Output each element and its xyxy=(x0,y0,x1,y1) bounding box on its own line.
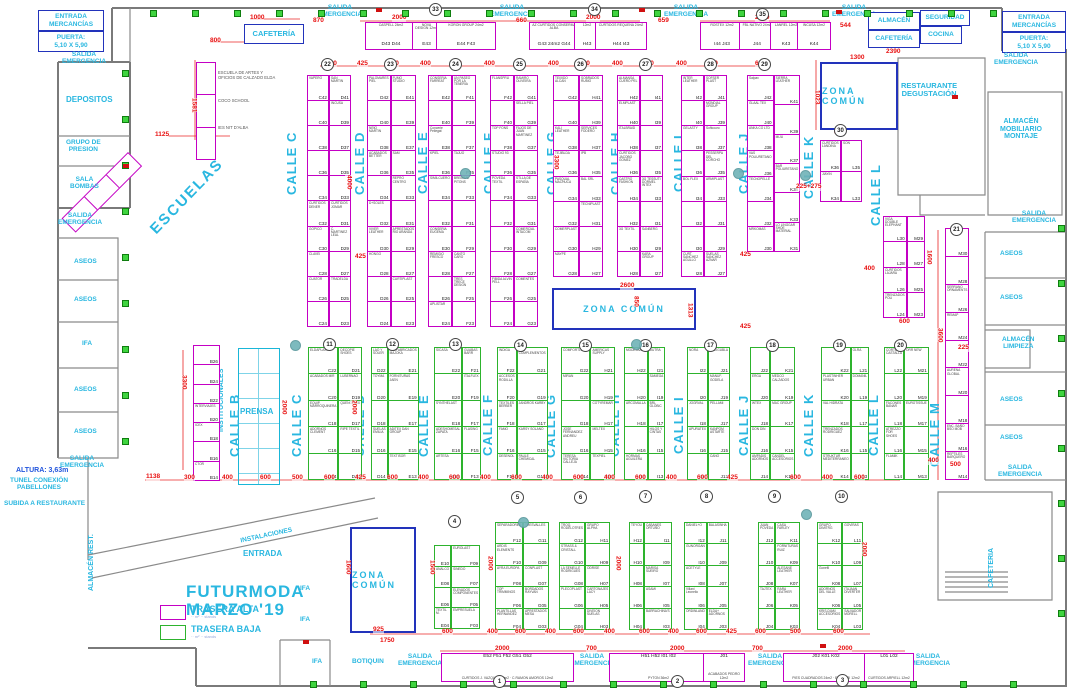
booth-G25: COMENTESG25 xyxy=(515,277,537,302)
booth-company: PELLAMI xyxy=(710,402,728,405)
booth-I07: MARISA SUEIROI07 xyxy=(645,566,671,587)
booth-C20: ACABADOS MIRC20 xyxy=(309,374,337,400)
booth-code: G27 xyxy=(527,271,536,276)
booth-code: L05 xyxy=(853,603,861,608)
booth-code: E38 xyxy=(442,145,450,150)
label-cafeteria: CAFETERIA xyxy=(988,535,995,600)
booth-company: VIVER LEATHER xyxy=(369,228,389,234)
boothrow-I44: ROSTEX 12m2I44 J43 xyxy=(700,22,744,50)
booth-code: I09 xyxy=(663,560,669,565)
booth-D19: LUBERNAOD19 xyxy=(339,374,361,400)
booth-K18: VAL HIDRATAK18 xyxy=(822,401,850,427)
booth-subcolumn: EUROLASTF09SINEDOF07ELEVADOS COMPONENTES… xyxy=(451,545,480,629)
booth-subcolumn: NORAI22I20JOGRVALI18APURATEXI16I14 xyxy=(687,347,708,480)
label-almac-n: ALMACÉN MOBILIARIO MONTAJE xyxy=(1000,118,1042,141)
booth-D37: D37 xyxy=(330,126,350,151)
booth-code: G19 xyxy=(537,395,546,400)
booth-J37: SoftcouroJ37 xyxy=(705,126,726,151)
booth-J07: J07 xyxy=(708,566,728,587)
booth-L17: L17 xyxy=(852,401,869,427)
booth-code: D21 xyxy=(352,368,360,373)
booth-F40: F40 xyxy=(491,101,513,126)
booth-D29: C. MARTINEZ LEALD29 xyxy=(330,227,350,252)
booth-F23: F23 xyxy=(453,302,475,326)
booth-code: C40 xyxy=(319,120,327,125)
booth-code: D15 xyxy=(352,448,360,453)
booth-M18: M18 xyxy=(946,396,968,424)
booth-code: F24 xyxy=(504,321,512,326)
booth-company: PAULE CHEMICAL xyxy=(519,455,546,461)
booth-L05: ITAJAAN DIVERTERL05 xyxy=(843,587,862,608)
booth-company: MANUF. GODELA xyxy=(710,375,728,381)
pillar xyxy=(290,340,301,351)
booth-code: E43 xyxy=(415,43,438,48)
booth-J34: TECNOPELLEJ34 xyxy=(748,177,773,202)
dimension-400: 400 xyxy=(666,475,677,482)
booth-D34: D34 xyxy=(368,176,390,201)
booth-code: J11 xyxy=(720,538,727,543)
booth-code: C32 xyxy=(319,221,327,226)
door-marker xyxy=(990,10,997,17)
label-aseos: ASEOS xyxy=(1000,434,1023,441)
booth-code: J10 xyxy=(766,560,773,565)
booth-D20: TOYMAD20 xyxy=(372,374,387,400)
booth-D22: LAO Y SOLERD22 xyxy=(372,348,387,374)
booth-code: H40 xyxy=(630,120,638,125)
booth-G28: MAYPEG28 xyxy=(554,252,578,276)
booth-E23: E23 xyxy=(392,302,416,326)
booth-code: F16 xyxy=(507,448,515,453)
door-marker xyxy=(122,438,129,445)
booth-company: CASPELL 24m2 xyxy=(368,24,414,27)
booth-code: G10 xyxy=(574,560,583,565)
dimension-3300: 3300 xyxy=(552,155,559,169)
booth-D23: D23 xyxy=(330,302,350,326)
booth-code: L33 xyxy=(852,196,860,201)
booth-company: ELMPLAST xyxy=(619,102,638,105)
booth-company: IPB xyxy=(581,152,601,155)
booth-code: H38 xyxy=(630,145,638,150)
dimension-600: 600 xyxy=(515,629,526,636)
booth-company: C. MARTINEZ LEAL xyxy=(331,228,349,238)
booth-H20: H20 xyxy=(625,374,647,400)
booth-company: SALVADOR MORELL xyxy=(844,610,861,616)
booth-F10: ARDIS ELEMENTSF10 xyxy=(496,544,522,565)
booth-K39: K39 xyxy=(775,105,800,134)
booth-code: D31 xyxy=(341,221,349,226)
booth-E40: E40 xyxy=(429,101,451,126)
booth-code: D17 xyxy=(352,421,360,426)
booth-column: JUAN POVEDAJ12J10J08TAJTEXJ06J04CASA FAR… xyxy=(758,522,798,630)
booth-E08: ANALCOE08 xyxy=(435,567,450,588)
booth-company: MAC GROUP xyxy=(772,402,793,405)
booth-J22: J22 xyxy=(751,348,769,374)
booth-D40: D40 xyxy=(368,101,390,126)
booth-column: B26B24B22INTERVIAJESB20ICEXB18B16CTORB14 xyxy=(193,345,220,481)
aisle-circle-33: 33 xyxy=(429,3,442,16)
booth-K19: MEDCO CALZADOSK19 xyxy=(771,374,794,400)
dimension-2390: 2390 xyxy=(886,49,900,56)
booth-L24: TRENZADOS POLIL24 xyxy=(884,293,906,317)
door-marker xyxy=(780,10,787,17)
booth-F39: F39 xyxy=(453,101,475,126)
booth-company: ARDIS ELEMENTS xyxy=(497,545,521,551)
booth-code: C38 xyxy=(319,145,327,150)
booth-code: J33 xyxy=(718,196,725,201)
dimension-660: 660 xyxy=(516,18,527,25)
booth-I38: GELASTYI38 xyxy=(682,126,703,151)
label-botiquin: BOTIQUIN xyxy=(352,658,384,665)
booth-B24: B24 xyxy=(194,365,219,384)
booth-I29: SANBERGI29 xyxy=(641,227,662,252)
booth-I28: CURT. SANCHEZ AGULLOI28 xyxy=(682,252,703,276)
booth-G30: COMERPLASTG30 xyxy=(554,227,578,252)
booth-code: J38 xyxy=(764,145,771,150)
booth-code: E16 xyxy=(452,448,460,453)
booth-company: FAJOS DE JUAN MARTINEZ xyxy=(516,127,536,137)
booth-company: AZ CURTIDOS CONSERMA ALBA xyxy=(532,24,576,31)
booth-code: K37 xyxy=(790,158,798,163)
booth-D16: SUELAS EMILIAD16 xyxy=(372,427,387,453)
booth-code: H06 xyxy=(634,603,642,608)
booth-G03: APRESTADOS MESAG03 xyxy=(524,609,548,629)
booth-subcolumn: TEIXIDO ALCANG42G40KALI LEATHERG38TEJIBL… xyxy=(553,75,579,277)
booth-company: CONSERIA FARREAT xyxy=(430,77,450,83)
booth-company: OLRA xyxy=(853,349,868,352)
booth-F07: SINEDOF07 xyxy=(452,567,479,588)
booth-J27: SUELAS SANCHEZ AZNARJ27 xyxy=(705,252,726,276)
booth-code: E24 xyxy=(442,321,450,326)
booth-I34: BOL FLEXI34 xyxy=(682,177,703,202)
booth-H36: CURTIDOS JACOBO GOMEZH36 xyxy=(618,151,639,176)
booth-company: FUMO STUDIO xyxy=(393,77,415,83)
booth-E37: E37 xyxy=(392,126,416,151)
booth-company: PIES CUADRADOS 24m2 · ECHARRI 12m2 xyxy=(786,677,866,680)
booth-code: I18 xyxy=(700,421,706,426)
booth-H40: ELMPLASTH40 xyxy=(618,101,639,126)
booth-code: F22 xyxy=(507,368,515,373)
booth-code: F27 xyxy=(466,271,474,276)
booth-code: J19 xyxy=(721,395,728,400)
booth-D42: PALOMARES PIELD42 xyxy=(368,76,390,101)
booth-code: I22 xyxy=(700,368,706,373)
booth-E42: CONSERIA FARREATE42 xyxy=(429,76,451,101)
booth-code: H20 xyxy=(637,395,645,400)
pillar xyxy=(801,509,812,520)
booth-company: SIERRA LEATHER xyxy=(776,77,799,83)
label-prensa: PRENSA xyxy=(240,408,273,417)
booth-code: I11 xyxy=(664,538,670,543)
booth-company: ACABADOS BETTER xyxy=(369,152,389,158)
booth-company: CANDEL ACCESORIOS xyxy=(772,455,793,461)
booth-E32: E32 xyxy=(429,201,451,226)
booth-company: CONPLAST xyxy=(525,567,547,570)
booth-code: I13 xyxy=(657,474,663,479)
booth-code: E18 xyxy=(452,421,460,426)
booth-code: D25 xyxy=(341,296,349,301)
booth-H37: SERVICES FODEROH37 xyxy=(580,126,602,151)
booth-company: VIGA DOUBLE ELEPHANT xyxy=(885,218,905,228)
booth-company: SIMILCUERO xyxy=(430,177,450,180)
booth-G32: G32 xyxy=(554,202,578,227)
booth-B22: B22 xyxy=(194,385,219,404)
wall-red-mark xyxy=(836,10,842,14)
dimension-400: 400 xyxy=(604,475,615,482)
door-marker xyxy=(822,10,829,17)
door-marker xyxy=(660,681,667,688)
aisle-circle-34: 34 xyxy=(588,3,601,16)
booth-code: F23 xyxy=(466,321,474,326)
booth-subcolumn: SEPARADORESF12ARDIS ELEMENTSF10AYRA EURO… xyxy=(495,522,523,630)
booth-code: G29 xyxy=(527,246,536,251)
booth-code: H39 xyxy=(592,120,600,125)
booth-code: E10 xyxy=(441,561,449,566)
booth-I20: I20 xyxy=(688,374,707,400)
booth-code: E17 xyxy=(409,421,417,426)
booth-company: ARCOMALLA xyxy=(626,402,646,405)
booth-company: CURTIDOS LANDINA xyxy=(822,142,839,148)
booth-subcolumn: CASA FARLEYK11FORNITURAS RUIZK09ALESANE … xyxy=(775,522,800,630)
booth-code: L14 xyxy=(894,474,902,479)
booth-subcolumn: SICASAE22E20SYNTHELASTE18ADESHOMESAL ZAP… xyxy=(434,347,462,480)
door-marker xyxy=(276,10,283,17)
wall-red-mark xyxy=(639,8,645,12)
booth-code: L03 xyxy=(853,624,861,629)
booth-L15: L15 xyxy=(852,427,869,453)
booth-column: VAPEROC42C40C38C36C34CURTIDOS DENERC32GO… xyxy=(307,75,351,327)
aisle-circle-5: 5 xyxy=(511,491,524,504)
booth-G12: TROQ. RODELOTRESG12 xyxy=(560,523,584,544)
booth-code: K39 xyxy=(790,129,798,134)
booth-I16: APURATEXI16 xyxy=(688,427,707,453)
booth-M13: M13 xyxy=(905,454,928,479)
booth-L16: ATREZZO FOR SHOESL16 xyxy=(885,427,903,453)
booth-code: L28 xyxy=(897,261,905,266)
booth-code: F05 xyxy=(470,602,478,607)
booth-company: CANTO CARO xyxy=(454,253,474,259)
booth-company: CURT. SANCHEZ AGULLO xyxy=(683,253,702,263)
booth-company: AYRA EUROPA xyxy=(497,567,521,570)
booth-C32: CURTIDOS DENERC32 xyxy=(308,201,328,226)
booth-company: KANPOM ASTARTE xyxy=(710,428,728,434)
door-marker xyxy=(1058,225,1065,232)
booth-company: CTOR xyxy=(195,463,218,466)
booth-G31: G31 xyxy=(515,201,537,226)
booth-column: VIGA DOUBLE ELEPHANTL30L28CURTIDOS LAJAR… xyxy=(883,216,925,318)
booth-company: APLISTAR xyxy=(430,303,450,306)
booth-code: D27 xyxy=(341,271,349,276)
aisle-circle-20: 20 xyxy=(894,339,907,352)
dimension-425: 425 xyxy=(726,629,737,636)
booth-code: L30 xyxy=(897,236,905,241)
booth-code: F31 xyxy=(466,221,474,226)
booth-company: NIÑO MARTIN xyxy=(369,127,389,133)
booth-company: ACCESOS RODILLA xyxy=(499,375,515,381)
booth-code: G37 xyxy=(527,145,536,150)
booth-company: SON xyxy=(843,142,860,145)
booth-company: MRKOMAS xyxy=(749,228,772,231)
booth-I42: INTER LEATHERI42 xyxy=(682,76,703,101)
dimension-2000: 2000 xyxy=(838,646,852,653)
booth-F13: F13 xyxy=(463,454,479,479)
street-calle-k: CALLE K xyxy=(801,378,816,473)
booth-code: I06 xyxy=(698,603,704,608)
dimension-500: 500 xyxy=(790,629,801,636)
booth-J14: AMPADIS ADORNOSJ14 xyxy=(751,454,769,479)
booth-I37: I37 xyxy=(641,126,662,151)
booth-code: F21 xyxy=(471,368,479,373)
booth-code: B22 xyxy=(210,398,218,403)
booth-company: CURTIDOS DENER xyxy=(309,202,327,208)
booth-subcolumn: RAMIRO OLIVEIRAG41SELLA PIELG39FAJOS DE … xyxy=(514,75,538,327)
booth-C42: VAPEROC42 xyxy=(308,76,328,101)
dimension-400: 400 xyxy=(928,458,939,465)
booth-H17: COTYREMARH17 xyxy=(591,401,613,427)
booth-J06: TAJTEXJ06 xyxy=(759,587,774,608)
dimension-425: 425 xyxy=(355,254,366,261)
dimension-870: 870 xyxy=(313,18,324,25)
booth-code: J20 xyxy=(761,395,768,400)
booth-G07: CONPLASTG07 xyxy=(524,566,548,587)
booth-code: M21 xyxy=(918,368,927,373)
booth-code: I08 xyxy=(698,581,704,586)
dimension-400: 400 xyxy=(604,629,615,636)
door-marker xyxy=(1058,390,1065,397)
dimension-1600: 1600 xyxy=(344,560,351,574)
booth-M20: AURENA GLOBALM20 xyxy=(946,368,968,396)
booth-code: I35 xyxy=(655,170,661,175)
booth-company: FAMO xyxy=(499,428,515,431)
booth-code: K15 xyxy=(785,448,793,453)
booth-code: F37 xyxy=(466,145,474,150)
booth-subcolumn: 1111 COMPLEMENTOSG21G19JANDROS KARBYG17K… xyxy=(517,347,548,480)
dimension-2000: 2000 xyxy=(280,400,287,414)
booth-code: E33 xyxy=(406,195,414,200)
dimension-600: 600 xyxy=(324,475,335,482)
booth-company: COMERCIAL INTACOM xyxy=(516,228,536,234)
dimension-600: 600 xyxy=(833,629,844,636)
booth-code: D23 xyxy=(341,321,349,326)
booth-H07: ODRISEH07 xyxy=(586,566,609,587)
booth-code: H18 xyxy=(637,421,645,426)
booth-code: H32 xyxy=(630,221,638,226)
booth-E17: E17 xyxy=(389,401,418,427)
booth-column: M30M28SERRANO ORNAMENTSM26REMAPM24M22AUR… xyxy=(945,228,967,480)
booth-code: D33 xyxy=(341,195,349,200)
booth-company: KALI LEATHER xyxy=(555,127,577,133)
door-marker xyxy=(150,10,157,17)
school-name: IES NIT D'ALBA xyxy=(218,125,248,130)
booth-code: K18 xyxy=(840,421,848,426)
booth-G29: COMERCIAL INTACOMG29 xyxy=(515,227,537,252)
booth-company: MAYPE xyxy=(555,253,577,256)
booth-code: E19 xyxy=(409,395,417,400)
booth-code: J12 xyxy=(766,538,773,543)
boothrow-H51: H51 H52 I01 I02PYTON 36m2 xyxy=(609,653,708,682)
booth-K16: TRENZADOS RODRIGUEZK16 xyxy=(822,427,850,453)
booth-J41: SOFSER PLASTJ41 xyxy=(705,76,726,101)
booth-company: STLLA DE ESPAÑA xyxy=(516,177,536,183)
booth-column: ALMANSA CUERO PELH42ELMPLASTH40ITALBRAID… xyxy=(617,75,663,277)
booth-code: C30 xyxy=(319,246,327,251)
booth-code: F08 xyxy=(513,581,521,586)
booth-G10: STRASS & CRISTALLG10 xyxy=(560,544,584,565)
door-marker xyxy=(122,208,129,215)
booth-C38: C38 xyxy=(308,126,328,151)
dimension-500: 500 xyxy=(950,462,961,469)
booth-code: F25 xyxy=(466,296,474,301)
booth-G08: LA SEMELLE RODRIGUESG08 xyxy=(560,566,584,587)
booth-company: JOSE FERNANDEZ ANDREU xyxy=(563,428,588,438)
door-marker xyxy=(444,10,451,17)
booth-code: G12 xyxy=(574,538,583,543)
booth-code: I39 xyxy=(655,120,661,125)
street-calle-m: CALLE M xyxy=(927,385,942,485)
booth-E10: E10 xyxy=(435,546,450,567)
booth-column: SEPARADORESF12ARDIS ELEMENTSF10AYRA EURO… xyxy=(495,522,537,630)
booth-F12: SEPARADORESF12 xyxy=(496,523,522,544)
booth-company: ACABADOS PEDRO 12m2 xyxy=(706,673,742,680)
label-almac-n-rest-: ALMACÉN REST. xyxy=(88,520,95,605)
booth-F36: STUDIO 93F36 xyxy=(491,151,513,176)
booth-K17: MAC GROUPK17 xyxy=(771,401,794,427)
booth-C26: CUATORC26 xyxy=(308,277,328,302)
booth-code: I44 J43 xyxy=(703,43,741,48)
booth-company: FLANSPRU xyxy=(492,77,512,80)
door-marker xyxy=(864,10,871,17)
booth-B18: ICEXB18 xyxy=(194,423,219,442)
booth-K31: LO LINGGAR SHOE MATERIALK31 xyxy=(775,223,800,251)
legend-note: ·· m² ·· stands xyxy=(191,634,261,640)
booth-J21: POLIGUBLAJ21 xyxy=(709,348,729,374)
booth-company: Softcouro xyxy=(706,127,725,130)
booth-G34: PASQUAL MACHUCAG34 xyxy=(554,177,578,202)
booth-company: MIRAN xyxy=(563,375,588,378)
label-aseos: ASEOS xyxy=(74,258,97,265)
booth-code: F29 xyxy=(466,246,474,251)
booth-K09: FORNITURAS RUIZK09 xyxy=(776,544,799,565)
booth-company: HORMAS AGUILERA xyxy=(626,455,646,461)
booth-H05: CARTONAJES LACYH05 xyxy=(586,587,609,608)
booth-code: C20 xyxy=(328,395,336,400)
label-ifa: IFA xyxy=(300,616,310,623)
legend-label: TRASERA ALTA xyxy=(191,605,259,614)
booth-J32: J32 xyxy=(748,202,773,227)
booth-D14: D14 xyxy=(372,454,387,479)
dimension-400: 400 xyxy=(864,266,875,273)
booth-code: F07 xyxy=(470,581,478,586)
booth-code: H08 xyxy=(634,581,642,586)
door-marker xyxy=(760,681,767,688)
booth-column: TEYOUH12H10H08H06H04CABANES ORTUÑOI11I09… xyxy=(629,522,669,630)
booth-company: GELASTY xyxy=(683,127,702,130)
booth-code: G36 xyxy=(568,170,577,175)
floor-plan: ESCUELA DE ARTES Y OFICIOS DE CALZADO EL… xyxy=(0,0,1070,692)
booth-code: G16 xyxy=(580,448,589,453)
booth-I17: BRL GLOBICI17 xyxy=(649,401,665,427)
booth-code: J01 xyxy=(706,655,742,660)
booth-code: C18 xyxy=(328,421,336,426)
booth-code: G33 xyxy=(527,195,536,200)
dimension-1138: 1138 xyxy=(146,474,160,481)
street-calle-c: CALLE C xyxy=(289,378,304,473)
booth-company: DECOPIE SHOES xyxy=(340,349,360,355)
booth-code: L17 xyxy=(860,421,868,426)
booth-F25: TRES TRECE DESIGNF25 xyxy=(453,277,475,302)
booth-code: G11 xyxy=(538,538,546,543)
door-marker xyxy=(122,346,129,353)
aisle-circle-14: 14 xyxy=(514,339,527,352)
